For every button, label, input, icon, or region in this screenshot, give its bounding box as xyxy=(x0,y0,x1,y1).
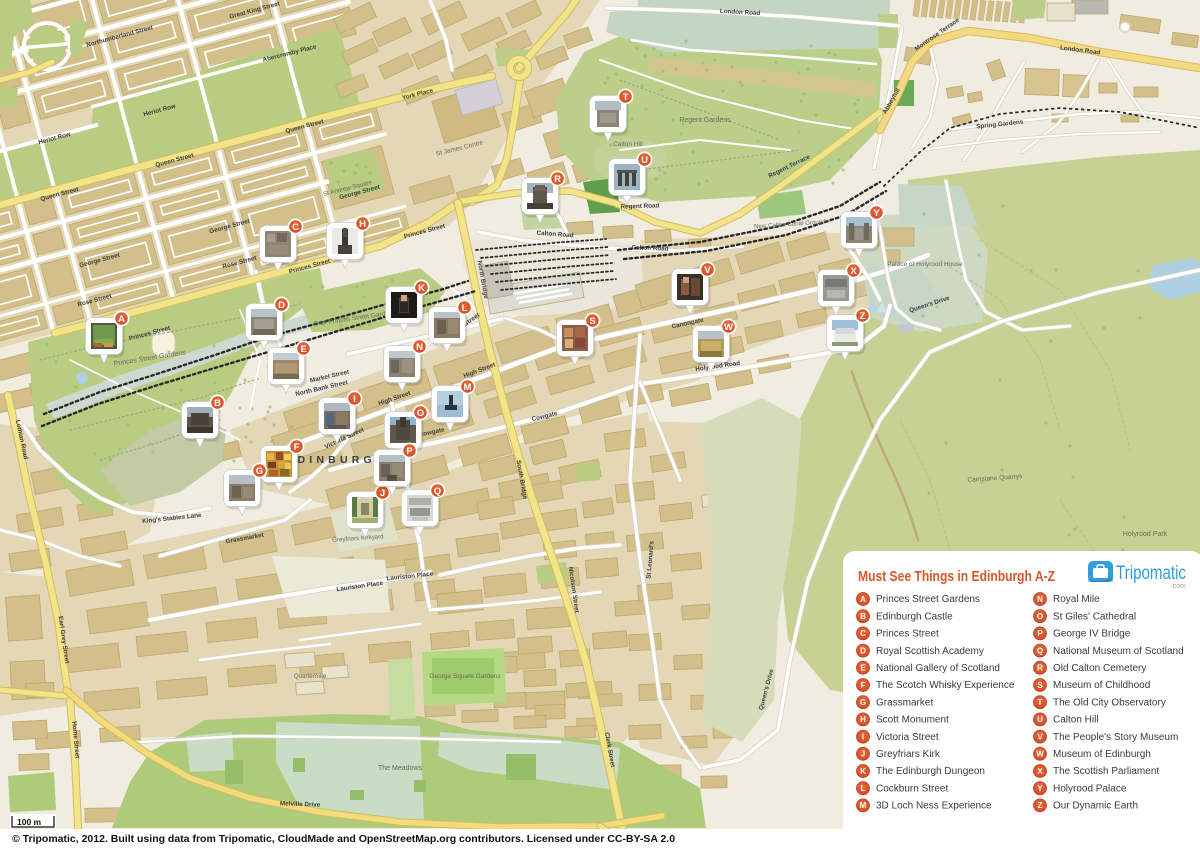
svg-text:Museum of Childhood: Museum of Childhood xyxy=(1053,680,1150,691)
svg-text:P: P xyxy=(1037,629,1043,638)
svg-text:V: V xyxy=(704,265,711,276)
svg-text:S: S xyxy=(1037,681,1043,690)
svg-text:The Old City Observatory: The Old City Observatory xyxy=(1053,697,1166,708)
svg-text:Y: Y xyxy=(1037,784,1043,793)
svg-text:R: R xyxy=(1037,664,1043,673)
svg-text:K: K xyxy=(418,283,425,294)
svg-text:The Edinburgh Dungeon: The Edinburgh Dungeon xyxy=(876,766,985,777)
svg-text:I: I xyxy=(862,732,864,741)
svg-text:Z: Z xyxy=(1038,801,1043,810)
svg-text:3D Loch Ness Experience: 3D Loch Ness Experience xyxy=(876,801,992,812)
svg-text:National Museum of Scotland: National Museum of Scotland xyxy=(1053,646,1184,657)
svg-text:Holyrood Park: Holyrood Park xyxy=(1123,531,1168,538)
svg-text:U: U xyxy=(1037,715,1043,724)
svg-text:Scott Monument: Scott Monument xyxy=(876,715,949,726)
svg-text:T: T xyxy=(1038,698,1043,707)
svg-text:B: B xyxy=(860,612,866,621)
svg-text:X: X xyxy=(1037,767,1043,776)
svg-text:M: M xyxy=(860,801,867,810)
svg-text:G: G xyxy=(860,698,866,707)
svg-text:R: R xyxy=(554,174,561,185)
svg-text:A: A xyxy=(118,314,125,325)
svg-text:The Meadows: The Meadows xyxy=(378,765,422,772)
svg-text:E: E xyxy=(860,664,866,673)
svg-text:V: V xyxy=(1037,732,1043,741)
svg-text:N: N xyxy=(1037,595,1043,604)
svg-text:U: U xyxy=(641,155,648,166)
svg-text:X: X xyxy=(850,266,857,277)
svg-text:N: N xyxy=(416,342,423,353)
svg-text:St Giles' Cathedral: St Giles' Cathedral xyxy=(1053,611,1136,622)
svg-text:Calton Road: Calton Road xyxy=(631,244,668,252)
svg-text:Regent Gardens: Regent Gardens xyxy=(679,117,731,124)
svg-text:George Square Gardens: George Square Gardens xyxy=(429,673,501,680)
svg-text:H: H xyxy=(860,715,866,724)
svg-text:B: B xyxy=(214,398,221,409)
svg-text:George IV Bridge: George IV Bridge xyxy=(1053,629,1131,640)
svg-text:Royal Scottish Academy: Royal Scottish Academy xyxy=(876,646,984,657)
svg-text:O: O xyxy=(417,408,424,419)
svg-text:Q: Q xyxy=(1037,646,1043,655)
svg-text:Princes Street Gardens: Princes Street Gardens xyxy=(876,594,980,605)
svg-text:W: W xyxy=(1036,750,1044,759)
svg-text:M: M xyxy=(464,382,472,393)
svg-text:Greyfriars Kirk: Greyfriars Kirk xyxy=(876,749,941,760)
svg-text:D: D xyxy=(860,646,866,655)
svg-text:Victoria Street: Victoria Street xyxy=(876,732,939,743)
svg-text:T: T xyxy=(623,92,629,103)
svg-text:Grassmarket: Grassmarket xyxy=(876,697,933,708)
svg-text:F: F xyxy=(294,442,300,453)
svg-text:EDINBURGH: EDINBURGH xyxy=(286,454,387,466)
svg-text:L: L xyxy=(462,303,468,314)
svg-text:F: F xyxy=(861,681,866,690)
svg-text:Tripomatic: Tripomatic xyxy=(1116,563,1186,584)
svg-text:Old Calton Cemetery: Old Calton Cemetery xyxy=(1053,663,1146,674)
svg-text:Calton Hill: Calton Hill xyxy=(613,141,643,148)
svg-text:Museum of Edinburgh: Museum of Edinburgh xyxy=(1053,749,1151,760)
svg-text:Quartermile: Quartermile xyxy=(294,673,327,680)
svg-text:National Gallery of Scotland: National Gallery of Scotland xyxy=(876,663,1000,674)
svg-text:© Tripomatic, 2012. Built usin: © Tripomatic, 2012. Built using data fro… xyxy=(12,833,675,845)
svg-text:Must See Things in Edinburgh A: Must See Things in Edinburgh A-Z xyxy=(858,569,1055,585)
svg-text:Palace of Holyrood House: Palace of Holyrood House xyxy=(887,261,963,268)
svg-text:Edinburgh Castle: Edinburgh Castle xyxy=(876,611,953,622)
svg-text:K: K xyxy=(860,767,866,776)
svg-text:Q: Q xyxy=(434,486,441,497)
svg-text:L: L xyxy=(861,784,866,793)
svg-text:H: H xyxy=(359,219,366,230)
svg-text:W: W xyxy=(724,322,733,333)
svg-text:D: D xyxy=(278,300,285,311)
svg-text:.com: .com xyxy=(1171,583,1186,590)
svg-text:C: C xyxy=(860,629,866,638)
svg-text:The People's Story Museum: The People's Story Museum xyxy=(1053,732,1178,743)
svg-text:P: P xyxy=(406,446,413,457)
svg-text:E: E xyxy=(300,344,306,355)
svg-text:Calton Hill: Calton Hill xyxy=(1053,715,1099,726)
svg-text:Melville Drive: Melville Drive xyxy=(280,800,321,808)
svg-text:G: G xyxy=(256,466,263,477)
svg-text:The Scotch Whisky Experience: The Scotch Whisky Experience xyxy=(876,680,1015,691)
svg-text:Holyrood Palace: Holyrood Palace xyxy=(1053,783,1127,794)
svg-text:Princes Street: Princes Street xyxy=(876,629,939,640)
svg-text:J: J xyxy=(861,750,865,759)
svg-text:100 m: 100 m xyxy=(17,817,42,827)
svg-text:I: I xyxy=(353,394,356,405)
svg-text:Our Dynamic Earth: Our Dynamic Earth xyxy=(1053,801,1138,812)
svg-text:Z: Z xyxy=(860,311,866,322)
svg-text:S: S xyxy=(589,316,595,327)
svg-text:The Scottish Parliament: The Scottish Parliament xyxy=(1053,766,1159,777)
svg-text:Cockburn Street: Cockburn Street xyxy=(876,783,948,794)
svg-text:Y: Y xyxy=(873,208,880,219)
svg-text:Royal Mile: Royal Mile xyxy=(1053,594,1100,605)
svg-text:A: A xyxy=(860,595,866,604)
svg-text:C: C xyxy=(292,222,299,233)
svg-text:O: O xyxy=(1037,612,1043,621)
